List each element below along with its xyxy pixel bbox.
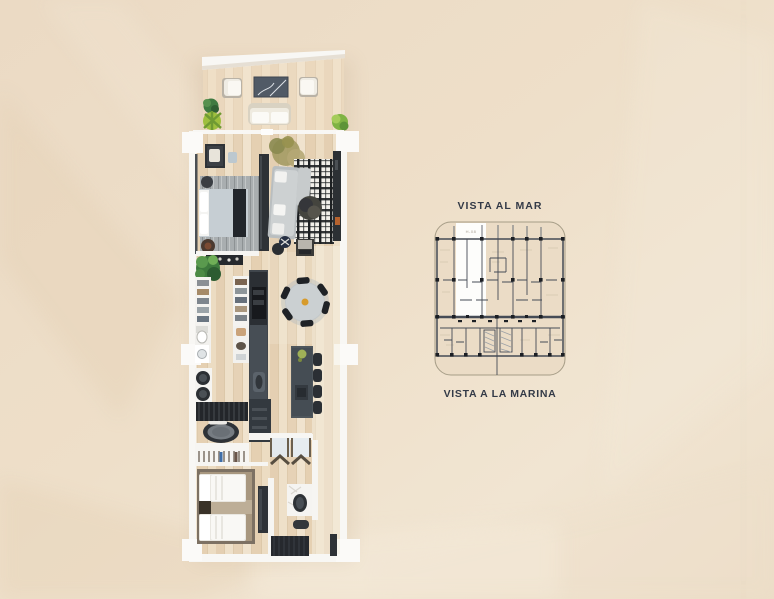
svg-text:H-08: H-08	[466, 229, 477, 234]
svg-text:VISTA AL MAR: VISTA AL MAR	[458, 200, 543, 212]
svg-text:VISTA A LA MARINA: VISTA A LA MARINA	[444, 388, 557, 400]
